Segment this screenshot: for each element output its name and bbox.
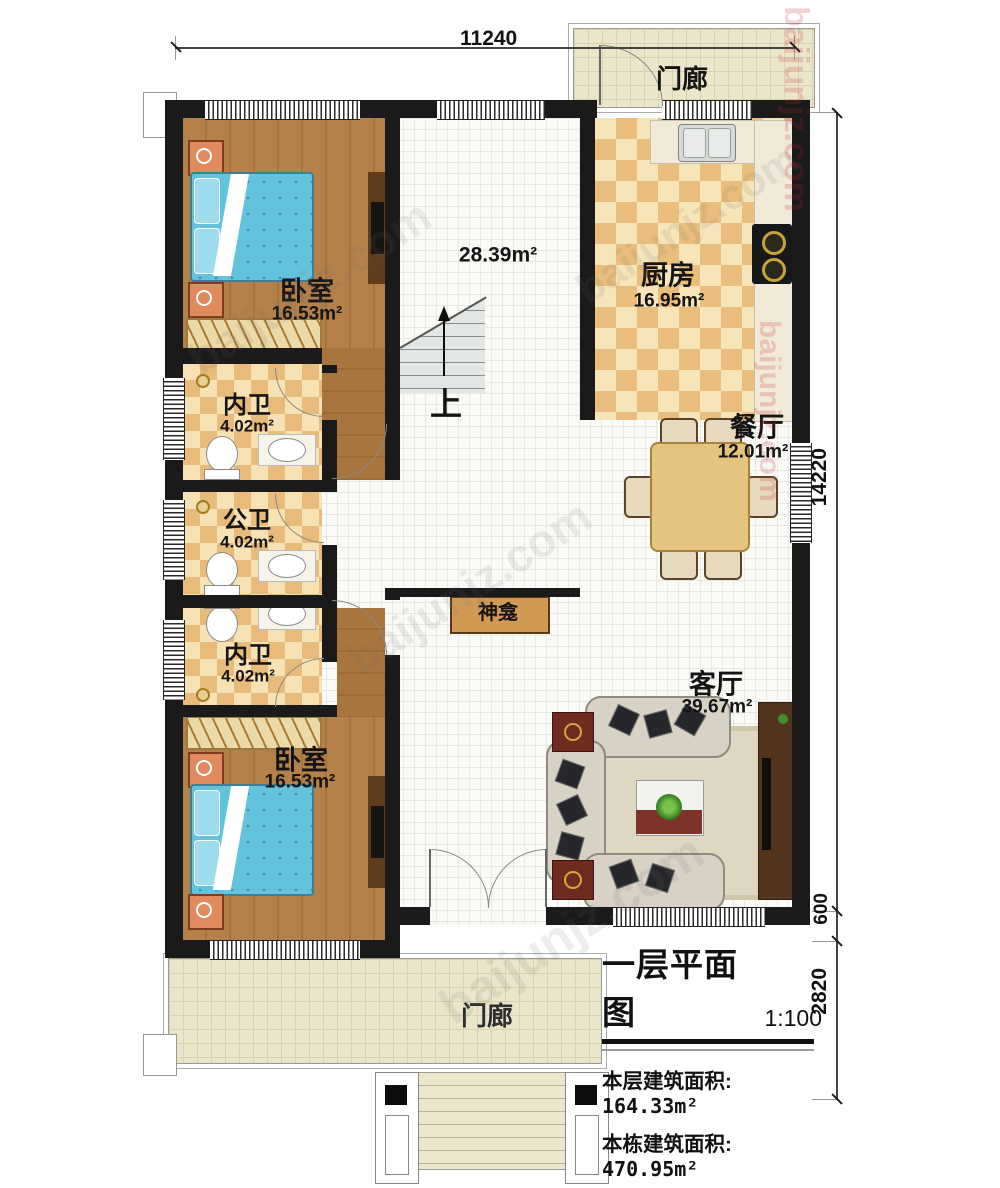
dining-chair xyxy=(660,548,698,580)
pillow xyxy=(194,178,220,224)
wall xyxy=(580,105,595,420)
porch-bottom-label: 门廊 xyxy=(461,1003,513,1029)
window xyxy=(163,620,185,700)
wall xyxy=(385,118,400,480)
entry-door-leaf xyxy=(545,849,547,907)
wall xyxy=(322,545,337,595)
sink xyxy=(268,554,306,578)
dining-label: 餐厅 xyxy=(730,415,784,442)
hall-area-label: 28.39m² xyxy=(459,245,537,266)
window xyxy=(163,500,185,580)
wall xyxy=(792,543,810,925)
desk-monitor xyxy=(371,806,384,858)
entry-steps xyxy=(417,1072,570,1170)
plan-title: 一层平面图 xyxy=(602,938,762,1034)
bath-ensuite-bottom-area-label: 4.02m² xyxy=(221,668,275,685)
bedroom-top-area-label: 16.53m² xyxy=(272,305,343,324)
plant xyxy=(778,714,788,724)
window xyxy=(163,378,185,460)
wall xyxy=(360,940,400,958)
window xyxy=(613,907,765,927)
pillow xyxy=(194,790,220,836)
tv xyxy=(762,758,771,850)
window xyxy=(210,940,360,960)
side-table-medallion xyxy=(564,871,582,889)
wall xyxy=(385,655,400,940)
wall xyxy=(183,595,337,608)
dining-chair xyxy=(746,476,778,518)
bedroom-bottom-area-label: 16.53m² xyxy=(265,773,336,792)
porch-column-right-cap xyxy=(575,1085,597,1105)
wall xyxy=(322,365,337,373)
porch-column-left-base xyxy=(385,1115,409,1175)
stove-burner xyxy=(762,231,786,255)
wall xyxy=(765,907,810,925)
bath-ensuite-top-label: 内卫 xyxy=(223,394,271,418)
nightstand-lamp xyxy=(196,290,212,306)
toilet xyxy=(206,436,238,472)
dining-area-label: 12.01m² xyxy=(718,443,789,462)
kitchen-area-label: 16.95m² xyxy=(634,292,705,311)
wall xyxy=(165,940,210,958)
wall xyxy=(183,480,337,492)
bath-public-area-label: 4.02m² xyxy=(220,534,274,551)
floor-plan: 门廊 门廊 xyxy=(0,0,1000,1188)
kitchen-label: 厨房 xyxy=(641,263,695,290)
wall xyxy=(546,907,613,925)
bath-ensuite-top-area-label: 4.02m² xyxy=(220,418,274,435)
wall xyxy=(360,100,437,118)
porch-column-right-base xyxy=(575,1115,599,1175)
dimension-line-right xyxy=(836,113,838,1099)
dining-chair xyxy=(704,548,742,580)
window xyxy=(662,100,752,120)
title-underline xyxy=(602,1039,814,1044)
shower-head xyxy=(196,500,210,514)
shrine-wall xyxy=(392,588,580,597)
toilet-tank xyxy=(204,469,240,480)
wall xyxy=(792,100,810,443)
porch-column-left-cap xyxy=(385,1085,407,1105)
stairs-up-label: 上 xyxy=(430,388,462,420)
porch-bottom xyxy=(168,958,602,1064)
stove-burner xyxy=(762,258,786,282)
title-block: 一层平面图 1:100 本层建筑面积: 164.33m² 本栋建筑面积: 470… xyxy=(602,938,822,1188)
stat-value: 164.33m² xyxy=(602,1094,698,1118)
bedroom-bottom-label: 卧室 xyxy=(274,748,328,775)
stat-label: 本层建筑面积: xyxy=(602,1070,732,1093)
extension-line xyxy=(812,1099,838,1100)
dimension-right-lower-label: 2820 xyxy=(808,968,832,1015)
extension-line xyxy=(812,941,838,942)
bath-public-label: 公卫 xyxy=(223,509,271,533)
toilet xyxy=(206,552,238,588)
nightstand-lamp xyxy=(196,148,212,164)
window xyxy=(437,100,545,120)
desk-monitor xyxy=(371,202,384,254)
wall xyxy=(183,348,322,364)
bath-ensuite-bottom-label: 内卫 xyxy=(224,644,272,668)
nightstand-lamp xyxy=(196,760,212,776)
wall xyxy=(165,580,183,620)
title-underline-thin xyxy=(602,1049,814,1051)
living-area-label: 39.67m² xyxy=(682,698,753,717)
stat-label: 本栋建筑面积: xyxy=(602,1133,732,1156)
up-arrow-shaft xyxy=(443,318,445,376)
shrine-label: 神龛 xyxy=(478,603,518,623)
side-table-medallion xyxy=(564,723,582,741)
toilet xyxy=(206,606,238,642)
bedroom-top-label: 卧室 xyxy=(280,279,334,306)
window xyxy=(205,100,360,120)
shower-head xyxy=(196,688,210,702)
kitchen-sink-basin xyxy=(683,128,706,158)
stat-value: 470.95m² xyxy=(602,1157,698,1181)
up-arrow-head xyxy=(438,306,450,321)
dimension-top-label: 11240 xyxy=(460,27,517,51)
wall xyxy=(165,700,183,958)
shower-head xyxy=(196,374,210,388)
plant xyxy=(656,794,682,820)
porch-top-label: 门廊 xyxy=(656,66,708,92)
pilaster-bottom-left xyxy=(143,1034,177,1076)
dimension-right-upper-label: 14220 xyxy=(808,448,832,506)
nightstand-lamp xyxy=(196,902,212,918)
wall xyxy=(165,100,183,378)
kitchen-sink-basin xyxy=(708,128,731,158)
wall xyxy=(165,460,183,500)
dimension-right-mid-label: 600 xyxy=(811,893,833,925)
living-label: 客厅 xyxy=(689,672,743,699)
sink xyxy=(268,438,306,462)
